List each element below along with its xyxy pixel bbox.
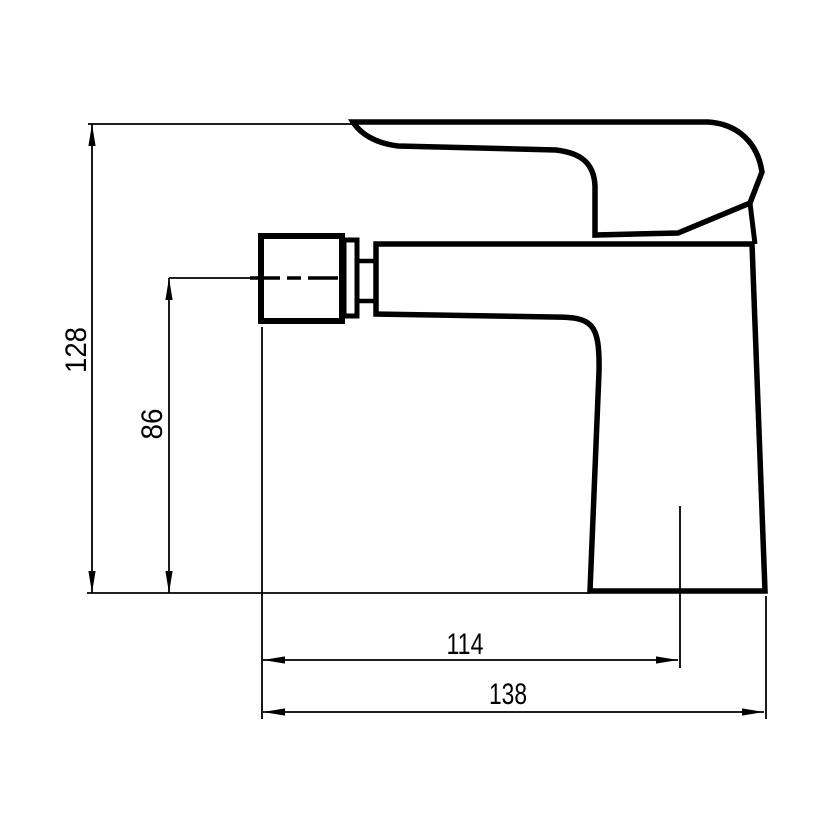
dimension-label-128: 128 [60, 327, 93, 373]
aerator-nut [344, 240, 357, 316]
dimension-label-138: 138 [489, 678, 527, 711]
dimension-label-86: 86 [136, 409, 169, 440]
arrow-138-right [742, 708, 764, 715]
arrow-128-top [88, 124, 95, 146]
arrow-138-left [263, 708, 285, 715]
faucet-handle-outline [353, 122, 762, 235]
arrow-114-right [656, 656, 678, 663]
faucet-body-outline [376, 244, 765, 591]
dimension-label-114: 114 [447, 628, 484, 661]
technical-drawing-canvas: 128 86 114 138 [0, 0, 830, 830]
arrow-86-bottom [165, 571, 172, 593]
arrow-128-bottom [88, 571, 95, 593]
handle-body-joint-line [750, 203, 755, 244]
faucet-dimension-drawing: 128 86 114 138 [0, 0, 830, 830]
arrow-114-left [263, 656, 285, 663]
arrow-86-top [165, 278, 172, 300]
